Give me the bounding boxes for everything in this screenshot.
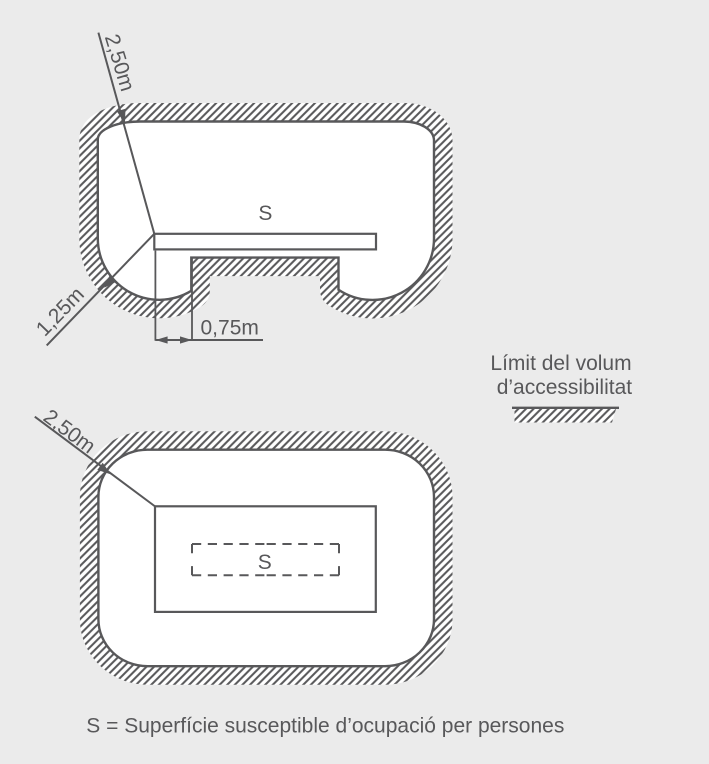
svg-text:S: S [258, 551, 272, 574]
svg-text:0,75m: 0,75m [201, 316, 259, 339]
svg-text:S = Superfície susceptible d’o: S = Superfície susceptible d’ocupació pe… [86, 714, 564, 737]
svg-text:Límit del volum: Límit del volum [490, 352, 631, 375]
svg-text:d’accessibilitat: d’accessibilitat [497, 376, 633, 399]
svg-text:S: S [258, 202, 272, 225]
